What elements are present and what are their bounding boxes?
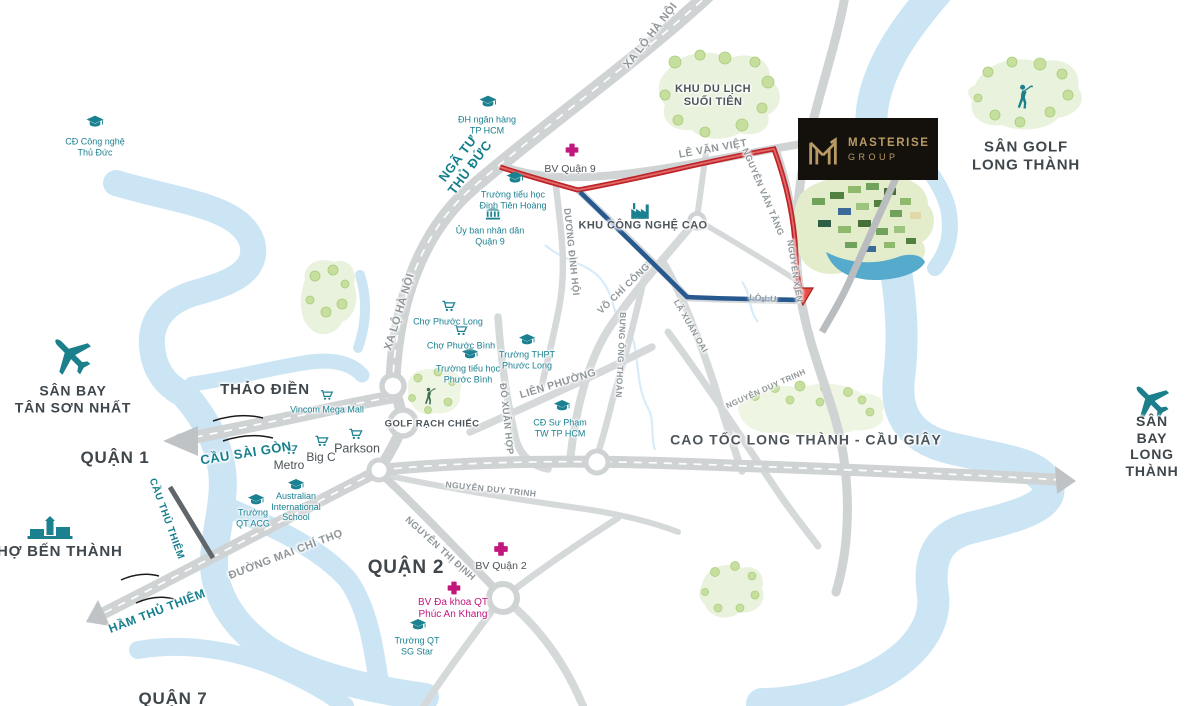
area-label-khu-cong-nghe-cao: KHU CÔNG NGHỆ CAO bbox=[578, 220, 707, 233]
poi-label-cho-phuoc-binh: Chợ Phước Bình bbox=[427, 341, 495, 352]
area-label-san-golf-long-thanh: SÂN GOLF LONG THÀNH bbox=[972, 138, 1080, 173]
poi-label-parkson: Parkson bbox=[334, 442, 380, 457]
masterise-logo-icon bbox=[806, 128, 840, 170]
poi-label-cd-cong-nghe-thu-duc: CĐ Công nghệ Thủ Đức bbox=[65, 136, 125, 157]
area-label-khu-du-lich-suoi-tien: KHU DU LỊCH SUỐI TIÊN bbox=[675, 83, 751, 109]
golfer-icon bbox=[418, 387, 439, 408]
district-label-quan-1: QUẬN 1 bbox=[80, 448, 149, 468]
poi-label-cd-su-pham: CĐ Sư Phạm TW TP HCM bbox=[533, 417, 587, 438]
poi-label-metro: Metro bbox=[274, 458, 305, 472]
poi-label-truong-dinh-tien-hoang: Trường tiểu học Đinh Tiên Hoàng bbox=[479, 189, 546, 210]
location-map: QUẬN 1 QUẬN 2 QUẬN 7 THẢO ĐIỀN CHỢ BẾN T… bbox=[0, 0, 1200, 706]
poi-label-cho-phuoc-long: Chợ Phước Long bbox=[413, 317, 483, 328]
poi-label-bv-phuc-an-khang: BV Đa khoa QT Phúc An Khang bbox=[418, 597, 488, 621]
ben-thanh-market-icon bbox=[26, 513, 74, 541]
area-label-golf-rach-chiec: GOLF RẠCH CHIẾC bbox=[385, 418, 480, 429]
graduation-cap-icon bbox=[519, 332, 535, 348]
shopping-cart-icon bbox=[442, 300, 457, 315]
shopping-cart-icon bbox=[315, 435, 330, 450]
airport-label-tan-son-nhat: SÂN BAY TÂN SƠN NHẤT bbox=[15, 382, 131, 415]
poi-label-uy-ban-quan-9: Ủy ban nhân dân Quận 9 bbox=[456, 225, 525, 246]
district-label-quan-7: QUẬN 7 bbox=[138, 689, 207, 706]
medical-cross-icon bbox=[446, 580, 462, 596]
poi-label-truong-qt-acg: Trường QT ACG bbox=[236, 507, 270, 528]
graduation-cap-icon bbox=[554, 398, 570, 414]
poi-label-truong-sg-star: Trường QT SG Star bbox=[394, 635, 439, 656]
brand-division: GROUP bbox=[848, 152, 930, 162]
poi-label-australian-school: Australian International School bbox=[271, 491, 321, 523]
district-label-thao-dien: THẢO ĐIỀN bbox=[220, 381, 310, 399]
poi-label-truong-phuoc-binh: Trường tiểu học Phước Bình bbox=[436, 363, 500, 384]
medical-cross-icon bbox=[564, 142, 580, 158]
poi-label-truong-thpt-phuoc-long: Trường THPT Phước Long bbox=[499, 349, 555, 370]
poi-label-vincom-mega-mall: Vincom Mega Mall bbox=[290, 405, 364, 416]
poi-label-big-c: Big C bbox=[306, 450, 335, 464]
poi-label-bv-quan-2: BV Quận 2 bbox=[475, 560, 526, 572]
district-label-quan-2: QUẬN 2 bbox=[368, 557, 445, 579]
poi-label-dh-ngan-hang: ĐH ngân hàng TP HCM bbox=[458, 114, 516, 135]
golfer-icon bbox=[1007, 83, 1037, 113]
road-label-lo-lu: LÒ LU bbox=[749, 292, 777, 304]
graduation-cap-icon bbox=[87, 114, 104, 131]
graduation-cap-icon bbox=[507, 170, 524, 187]
road-label-cao-toc-long-thanh: CAO TỐC LONG THÀNH - CẦU GIÂY bbox=[670, 432, 942, 449]
medical-cross-icon bbox=[493, 541, 510, 558]
masterise-logo-card: MASTERISE GROUP bbox=[798, 118, 938, 180]
shopping-cart-icon bbox=[349, 428, 364, 443]
graduation-cap-icon bbox=[480, 94, 497, 111]
poi-label-bv-quan-9: BV Quận 9 bbox=[544, 163, 595, 175]
shopping-cart-icon bbox=[320, 389, 334, 403]
airport-label-long-thanh: SÂN BAY LONG THÀNH bbox=[1126, 413, 1179, 479]
graduation-cap-icon bbox=[248, 492, 264, 508]
brand-name: MASTERISE bbox=[848, 137, 930, 149]
factory-icon bbox=[630, 201, 651, 222]
landmark-label-cho-ben-thanh: CHỢ BẾN THÀNH bbox=[0, 543, 123, 561]
